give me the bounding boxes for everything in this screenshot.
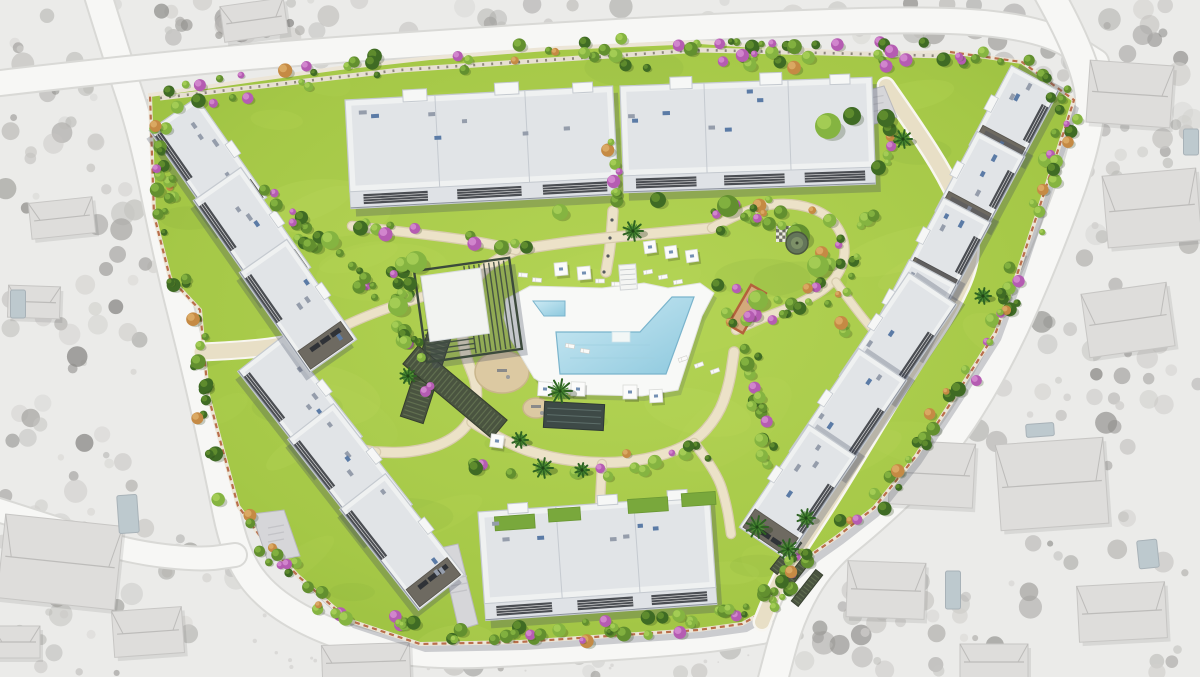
context-house: [321, 642, 413, 677]
masterplan-aerial-render: [0, 0, 1200, 677]
context-house: [28, 196, 99, 243]
context-house: [1086, 60, 1177, 132]
context-pool: [1137, 539, 1160, 569]
sun-lounger: [596, 279, 605, 283]
context-house: [111, 606, 187, 661]
context-house: [0, 514, 126, 614]
context-house: [0, 626, 43, 662]
gazebo: [786, 232, 808, 254]
giant-chess-board: [779, 239, 782, 242]
sun-lounger: [612, 282, 621, 286]
giant-chess-board: [779, 232, 782, 235]
context-pool: [946, 571, 961, 609]
context-pool: [1026, 423, 1055, 438]
giant-chess-board: [782, 239, 785, 242]
giant-chess-board: [782, 232, 785, 235]
block-south: [477, 487, 723, 628]
giant-chess-board: [776, 236, 779, 239]
giant-chess-board: [779, 236, 782, 239]
context-house: [1077, 582, 1171, 647]
giant-chess-board: [776, 239, 779, 242]
context-house: [1102, 168, 1200, 252]
context-pool: [117, 494, 140, 533]
context-house: [995, 437, 1112, 535]
context-house: [1081, 282, 1179, 362]
pool-steps: [612, 332, 630, 342]
clubhouse-roof: [421, 268, 490, 342]
cabana: [489, 434, 506, 452]
context-pool: [1184, 129, 1199, 155]
context-house: [846, 561, 929, 624]
site-plan-svg: [0, 0, 1200, 677]
giant-chess-board: [776, 232, 779, 235]
sun-lounger: [518, 273, 527, 278]
giant-chess-board: [782, 236, 785, 239]
context-pool: [11, 290, 26, 318]
sun-lounger: [532, 278, 541, 283]
context-house: [960, 644, 1031, 677]
cabana: [623, 385, 639, 402]
white-pergola: [619, 264, 638, 290]
block-north-west: [345, 77, 624, 217]
water-feature: [543, 401, 604, 430]
